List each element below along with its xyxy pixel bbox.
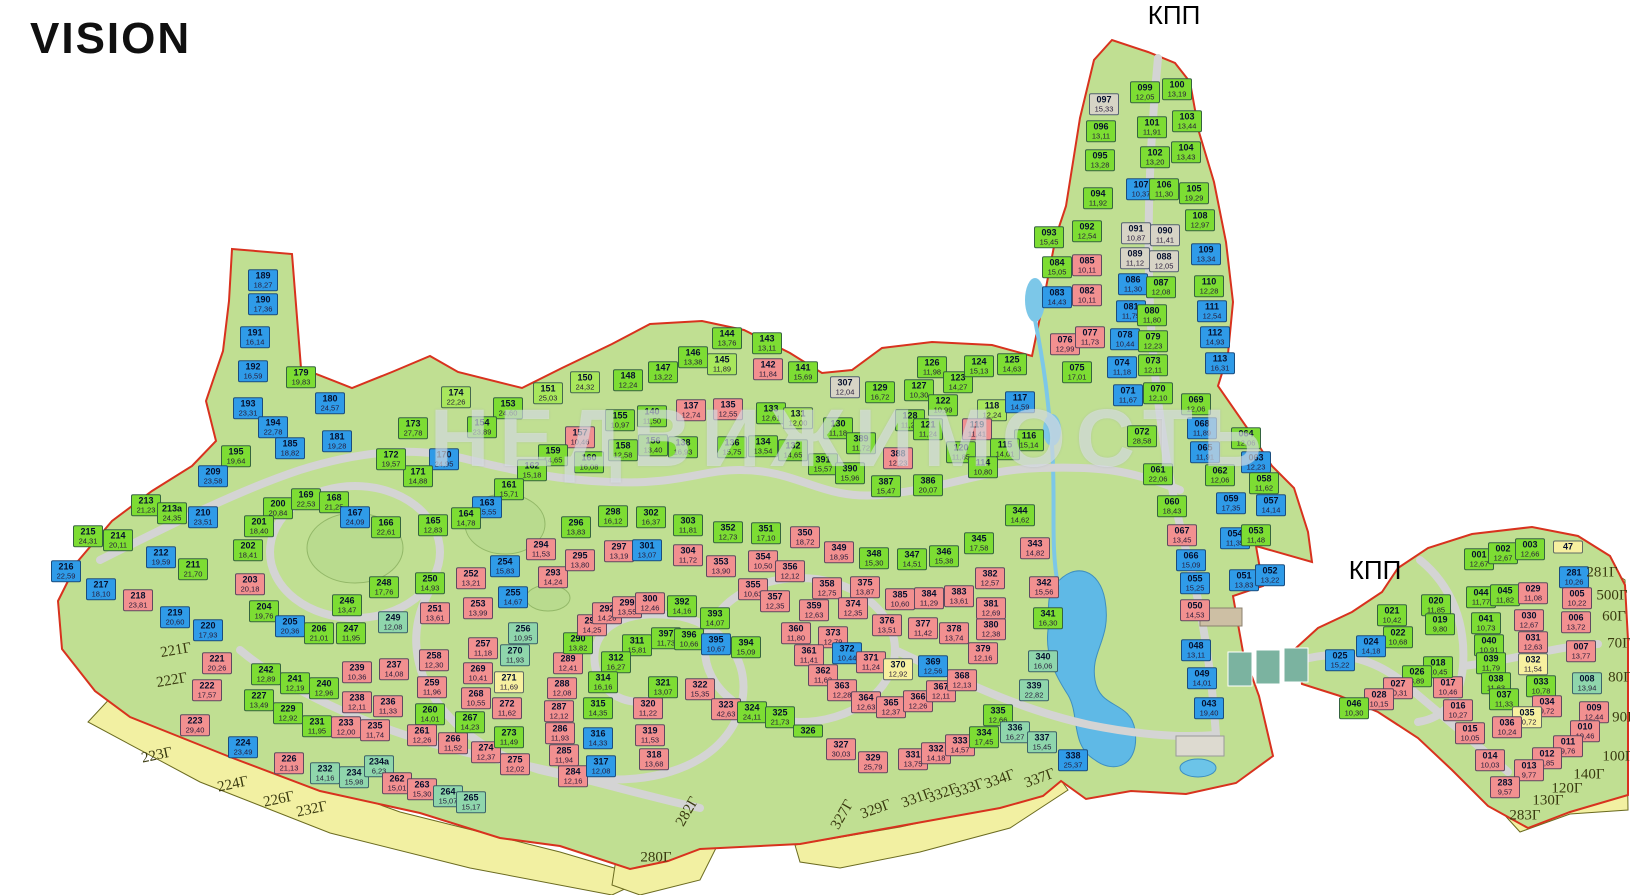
- masterplan-canvas: 09715,3309912,0510013,1909613,1110111,91…: [0, 0, 1630, 895]
- forest-zone-label: 223Г: [140, 744, 174, 767]
- forest-zone-label: 281Г: [1586, 565, 1617, 582]
- forest-zone-label: 500Г: [1596, 588, 1627, 605]
- forest-zone-label: 90Г: [1612, 710, 1630, 727]
- forest-zone-label: 283Г: [1509, 808, 1540, 825]
- forest-zone-label: 232Г: [295, 798, 329, 821]
- forest-zone-label: 327Г: [828, 797, 858, 832]
- forest-zone-label: 337Г: [1022, 766, 1057, 793]
- forest-zone-label: 280Г: [640, 850, 671, 867]
- checkpoint-label-north: КПП: [1148, 0, 1201, 31]
- brand-logo: VISION: [30, 14, 191, 64]
- forest-zone-label: 100Г: [1602, 749, 1630, 766]
- checkpoint-label-east: КПП: [1349, 555, 1402, 586]
- forest-zone-label: 222Г: [155, 670, 189, 692]
- forest-zone-label: 70Г: [1607, 636, 1630, 653]
- forest-zone-label: 226Г: [262, 788, 296, 811]
- forest-zone-label: 60Г: [1602, 609, 1626, 626]
- forest-zone-label: 282Г: [673, 794, 703, 829]
- zones-layer: 221Г222Г223Г224Г226Г232Г280Г282Г327Г329Г…: [0, 0, 1630, 895]
- forest-zone-label: 80Г: [1608, 670, 1630, 687]
- forest-zone-label: 224Г: [216, 773, 250, 796]
- forest-zone-label: 333Г: [951, 776, 986, 803]
- forest-zone-label: 329Г: [858, 797, 893, 824]
- forest-zone-label: 334Г: [982, 767, 1017, 794]
- forest-zone-label: 221Г: [159, 640, 193, 662]
